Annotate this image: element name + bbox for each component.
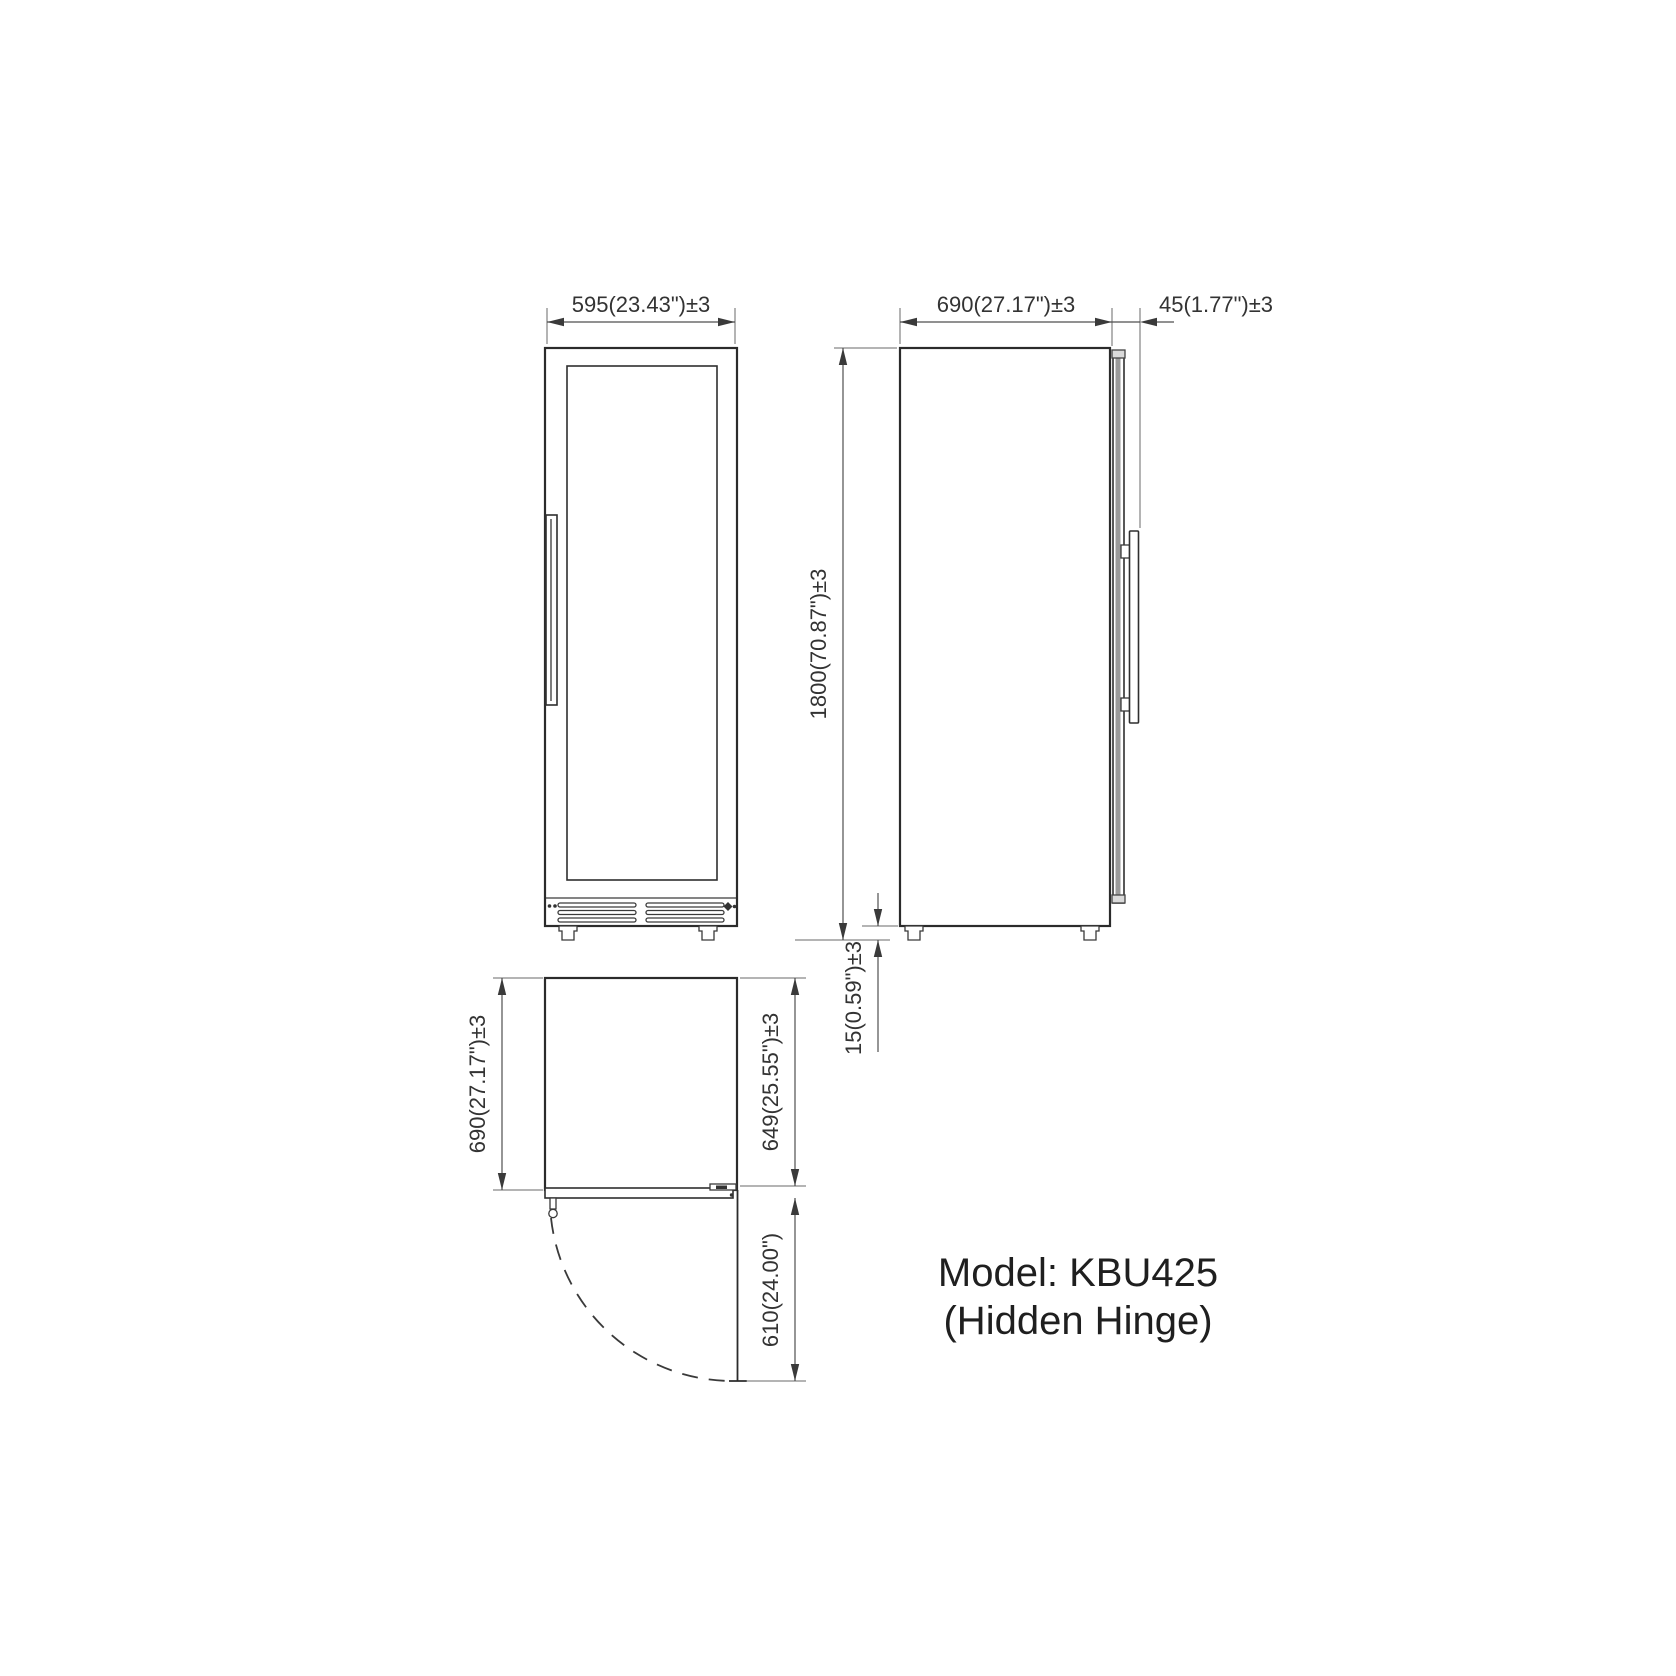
dim-label-top-depth: 690(27.17")±3 [465,1015,490,1154]
arrowhead [791,1198,799,1215]
dim-top-depth: 690(27.17")±3 [465,978,543,1190]
grille-slat [558,903,636,907]
dim-foot-height: 15(0.59")±3 [841,893,898,1055]
hinge-block [716,1186,727,1190]
door-top-cap [1112,350,1125,358]
grille-slat [646,911,724,915]
side-view [900,348,1139,940]
dim-door-swing: 610(24.00") [746,1198,806,1381]
dim-label-depth-without-door: 649(25.55")±3 [758,1013,783,1152]
drawing-canvas: 595(23.43")±3 690(27.17")±3 45(1.77")±3 … [0,0,1676,1676]
arrowhead [839,923,847,940]
dim-label-overall-height: 1800(70.87")±3 [806,569,831,720]
dim-label-door-swing: 610(24.00") [758,1233,783,1347]
arrowhead [1095,318,1112,326]
grille-slat [646,903,724,907]
front-door-handle [546,515,557,705]
arrowhead [900,318,917,326]
door-panel-fill [1116,355,1121,900]
grille-slat [558,918,636,922]
dim-label-front-width: 595(23.43")±3 [572,292,711,317]
grille-slat [558,911,636,915]
arrowhead [547,318,564,326]
side-cabinet-outline [900,348,1110,926]
front-left-foot [559,926,577,940]
handle-bar-side [1130,531,1139,723]
dim-depth-without-door: 649(25.55")±3 [740,978,806,1186]
handle-stem [550,1198,556,1209]
grille-screw [548,904,552,908]
grille-screw [553,904,557,908]
arrowhead [791,978,799,995]
dim-label-door-protrusion: 45(1.77")±3 [1159,292,1273,317]
arrowhead [498,1173,506,1190]
top-door-closed [545,1188,733,1198]
dim-label-foot-height: 15(0.59")±3 [841,941,866,1055]
model-label: Model: KBU425 (Hidden Hinge) [938,1251,1218,1343]
model-name: Model: KBU425 [938,1251,1218,1295]
top-view [545,978,747,1381]
grille-screw [733,905,737,909]
arrowhead [874,909,882,926]
dim-overall-height: 1800(70.87")±3 [795,348,897,940]
handle-bracket-top [1121,545,1130,558]
door-bottom-cap [1112,895,1125,903]
dim-door-protrusion: 45(1.77")±3 [1112,292,1273,528]
arrowhead [1140,318,1157,326]
arrowhead [498,978,506,995]
arrowhead [839,348,847,365]
arrowhead [791,1364,799,1381]
arrowhead [718,318,735,326]
arrowhead [791,1169,799,1186]
side-front-foot [905,926,923,940]
handle-bracket-bottom [1121,698,1130,711]
front-glass-door-frame [567,366,717,880]
arrowhead [874,940,882,957]
handle-grip [549,1209,557,1217]
hinge-pin [730,1193,733,1196]
model-hinge-note: (Hidden Hinge) [943,1299,1212,1343]
top-cabinet-outline [545,978,737,1190]
grille-slat [646,918,724,922]
side-rear-foot [1081,926,1099,940]
door-swing-arc [551,1218,733,1381]
side-door-panel [1112,350,1125,903]
dimensional-drawing: 595(23.43")±3 690(27.17")±3 45(1.77")±3 … [0,0,1676,1676]
dim-label-side-depth: 690(27.17")±3 [937,292,1076,317]
dim-front-width: 595(23.43")±3 [547,292,735,344]
front-right-foot [699,926,717,940]
front-view [545,348,737,940]
dim-side-depth: 690(27.17")±3 [900,292,1112,346]
top-handle-section [549,1198,557,1218]
